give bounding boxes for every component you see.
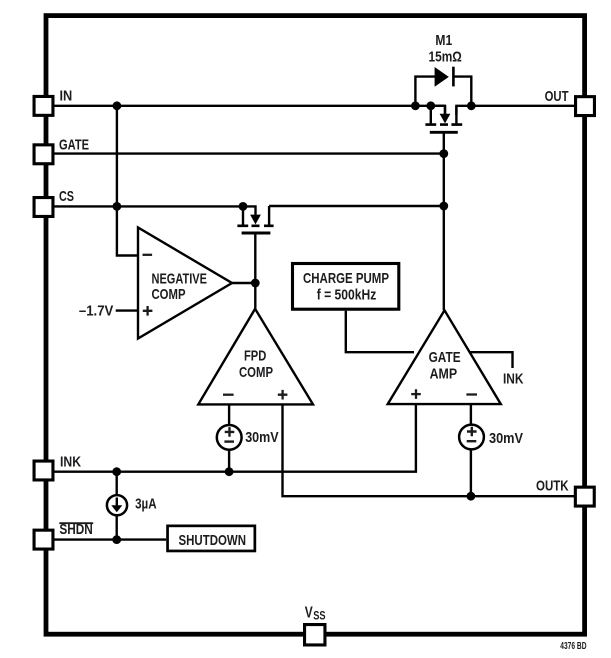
svg-text:INK: INK [503,371,524,388]
svg-text:30mV: 30mV [245,429,278,446]
svg-text:COMP: COMP [152,286,186,303]
svg-text:GATE: GATE [429,349,461,366]
svg-text:GATE: GATE [59,137,89,154]
svg-text:FPD: FPD [244,348,266,365]
svg-text:V: V [305,605,314,622]
svg-text:IN: IN [60,87,73,104]
svg-text:CS: CS [59,188,74,205]
svg-text:INK: INK [60,453,81,470]
svg-text:COMP: COMP [239,364,273,381]
svg-text:SS: SS [313,610,326,622]
svg-text:4376 BD: 4376 BD [560,641,586,652]
svg-text:M1: M1 [435,32,452,49]
svg-text:SHUTDOWN: SHUTDOWN [179,532,247,549]
svg-text:OUT: OUT [545,88,569,105]
svg-text:OUTK: OUTK [536,477,569,494]
svg-text:AMP: AMP [430,365,458,382]
svg-text:–1.7V: –1.7V [79,303,113,320]
svg-text:NEGATIVE: NEGATIVE [152,270,208,287]
svg-text:3µA: 3µA [135,495,157,512]
svg-text:f = 500kHz: f = 500kHz [317,286,377,303]
svg-text:15mΩ: 15mΩ [429,49,462,66]
svg-text:30mV: 30mV [489,430,523,447]
svg-text:CHARGE PUMP: CHARGE PUMP [303,270,389,287]
